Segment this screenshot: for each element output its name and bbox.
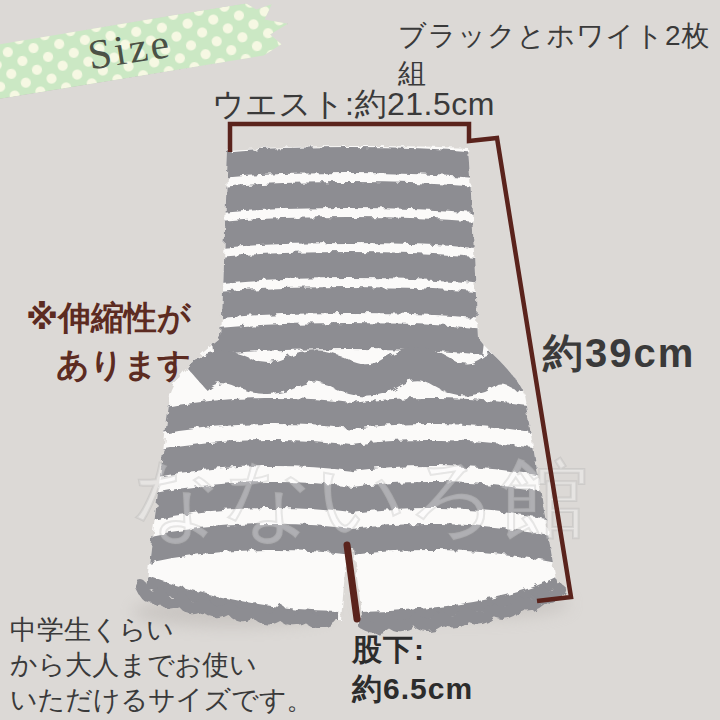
stretch-note: ※伸縮性が あります (26, 294, 206, 388)
hip-ruffle-band (196, 364, 530, 382)
inseam-label-line2: 約6.5cm (352, 669, 473, 708)
size-note-line2: から大人までお使い (10, 648, 330, 683)
size-note-line1: 中学生くらい (10, 613, 330, 648)
length-measurement-label: 約39cm (543, 326, 695, 381)
stretch-note-line2: あります (26, 341, 206, 388)
target-size-note: 中学生くらい から大人までお使い いただけるサイズです。 (10, 613, 330, 718)
inseam-label-line1: 股下: (352, 630, 473, 669)
size-note-line3: いただけるサイズです。 (10, 683, 330, 718)
inseam-measurement-label: 股下: 約6.5cm (352, 630, 473, 708)
product-size-image: { "colors": { "bg": "#dcd9d6", "stripe-g… (0, 0, 720, 720)
product-subtitle: ブラックとホワイト2枚組 (398, 17, 720, 93)
stretch-note-line1: ※伸縮性が (26, 294, 206, 341)
waist-measurement-label: ウエスト:約21.5cm (212, 83, 495, 127)
shop-watermark: なないろ館 (132, 448, 590, 547)
